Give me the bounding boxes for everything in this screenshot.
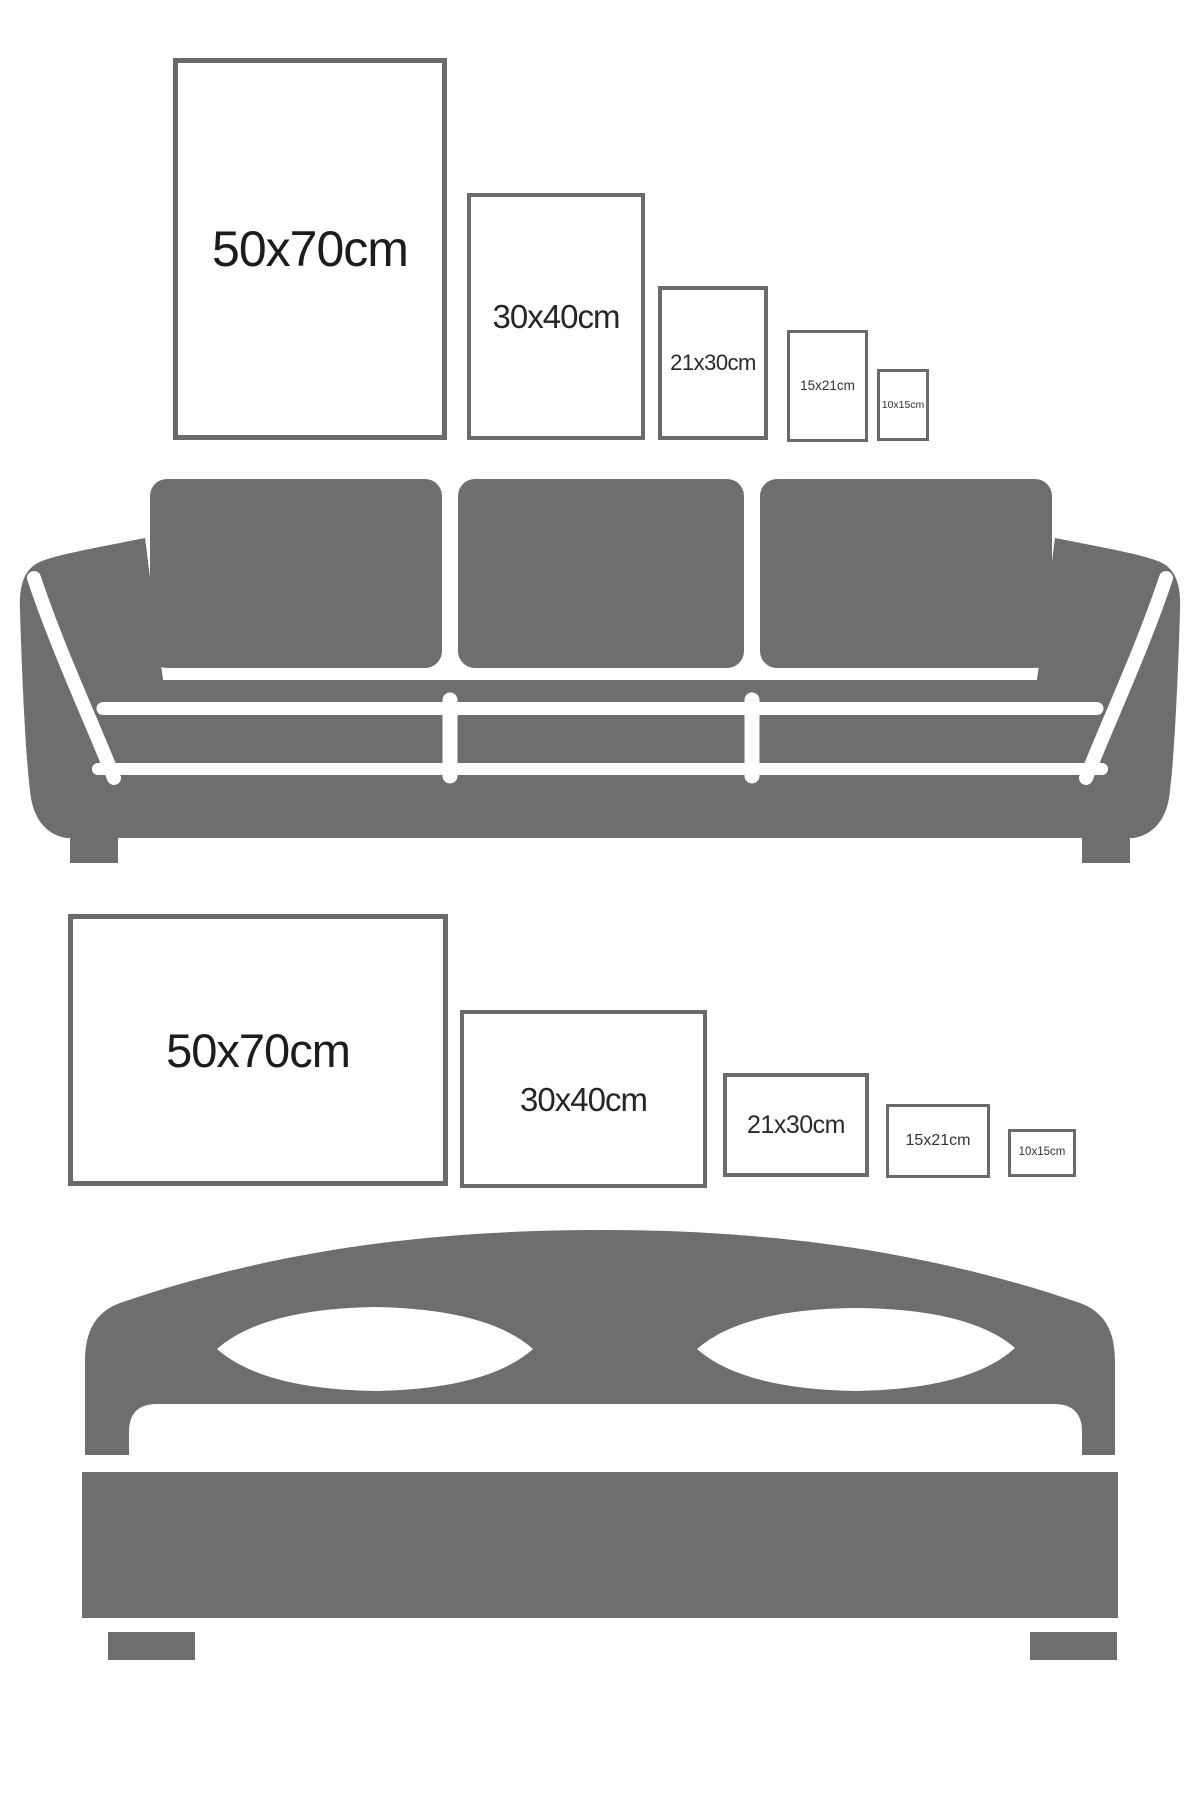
size-frame-50x70-landscape: 50x70cm [68, 914, 448, 1186]
size-label-10x15-landscape: 10x15cm [1019, 1147, 1066, 1159]
size-label-30x40-portrait: 30x40cm [493, 300, 620, 333]
size-frame-30x40-landscape: 30x40cm [460, 1010, 707, 1188]
size-label-50x70-portrait: 50x70cm [212, 224, 408, 274]
size-label-15x21-landscape: 15x21cm [906, 1133, 971, 1149]
sofa-icon [0, 460, 1200, 880]
size-label-21x30-landscape: 21x30cm [747, 1113, 845, 1138]
bed-icon [0, 1224, 1200, 1664]
size-frame-10x15-portrait: 10x15cm [877, 369, 929, 441]
size-label-10x15-portrait: 10x15cm [882, 400, 925, 411]
size-frame-10x15-landscape: 10x15cm [1008, 1129, 1076, 1177]
size-label-50x70-landscape: 50x70cm [166, 1027, 350, 1074]
size-label-15x21-portrait: 15x21cm [800, 379, 855, 393]
size-frame-21x30-portrait: 21x30cm [658, 286, 768, 440]
size-frame-15x21-landscape: 15x21cm [886, 1104, 990, 1178]
size-frame-50x70-portrait: 50x70cm [173, 58, 447, 440]
size-frame-15x21-portrait: 15x21cm [787, 330, 868, 442]
size-label-21x30-portrait: 21x30cm [670, 352, 756, 374]
poster-size-guide: { "colors": { "background": "#ffffff", "… [0, 0, 1200, 1800]
size-frame-21x30-landscape: 21x30cm [723, 1073, 869, 1177]
size-label-30x40-landscape: 30x40cm [520, 1083, 647, 1116]
size-frame-30x40-portrait: 30x40cm [467, 193, 645, 440]
